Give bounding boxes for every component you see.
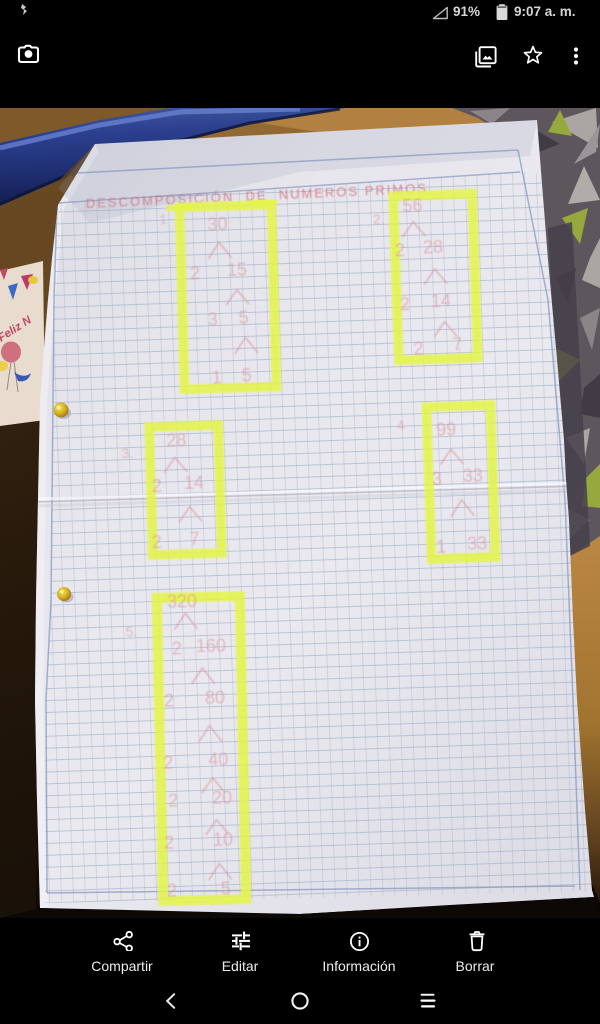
svg-text:5: 5 [241,365,252,385]
svg-text:2: 2 [163,753,173,773]
svg-text:7: 7 [452,334,463,354]
svg-text:3: 3 [432,469,443,489]
svg-text:2.: 2. [373,211,385,227]
svg-text:2: 2 [167,881,177,901]
svg-text:30: 30 [207,214,228,235]
svg-text:1: 1 [211,367,222,387]
svg-text:14: 14 [430,290,451,311]
svg-text:1: 1 [436,537,447,557]
svg-text:5: 5 [221,878,231,898]
svg-text:1: 1 [159,211,168,227]
svg-text:33: 33 [467,533,488,554]
svg-text:80: 80 [205,687,225,707]
svg-text:3.: 3. [121,445,133,461]
svg-text:40: 40 [208,749,228,769]
svg-text:5.: 5. [125,623,137,639]
svg-text:2: 2 [164,691,174,711]
svg-text:320: 320 [167,591,197,612]
svg-text:2: 2 [164,833,174,853]
svg-text:2: 2 [395,240,406,260]
svg-text:5: 5 [238,307,249,327]
svg-text:2: 2 [190,263,201,283]
svg-text:7: 7 [189,529,200,549]
svg-text:2: 2 [168,790,178,810]
svg-text:28: 28 [423,237,444,258]
svg-text:2: 2 [413,338,424,358]
svg-text:4: 4 [397,417,406,433]
svg-text:14: 14 [183,472,204,493]
svg-text:2: 2 [151,532,162,552]
svg-text:56: 56 [402,195,423,216]
svg-text:15: 15 [227,259,248,280]
svg-text:20: 20 [212,787,232,807]
svg-text:160: 160 [196,635,226,656]
svg-text:2: 2 [172,638,182,658]
svg-text:99: 99 [436,419,457,440]
svg-text:3: 3 [207,309,218,329]
svg-text:28: 28 [166,430,187,451]
svg-text:2: 2 [151,476,162,496]
svg-text:33: 33 [462,465,483,486]
svg-text:10: 10 [213,829,233,849]
svg-text:2: 2 [400,294,411,314]
